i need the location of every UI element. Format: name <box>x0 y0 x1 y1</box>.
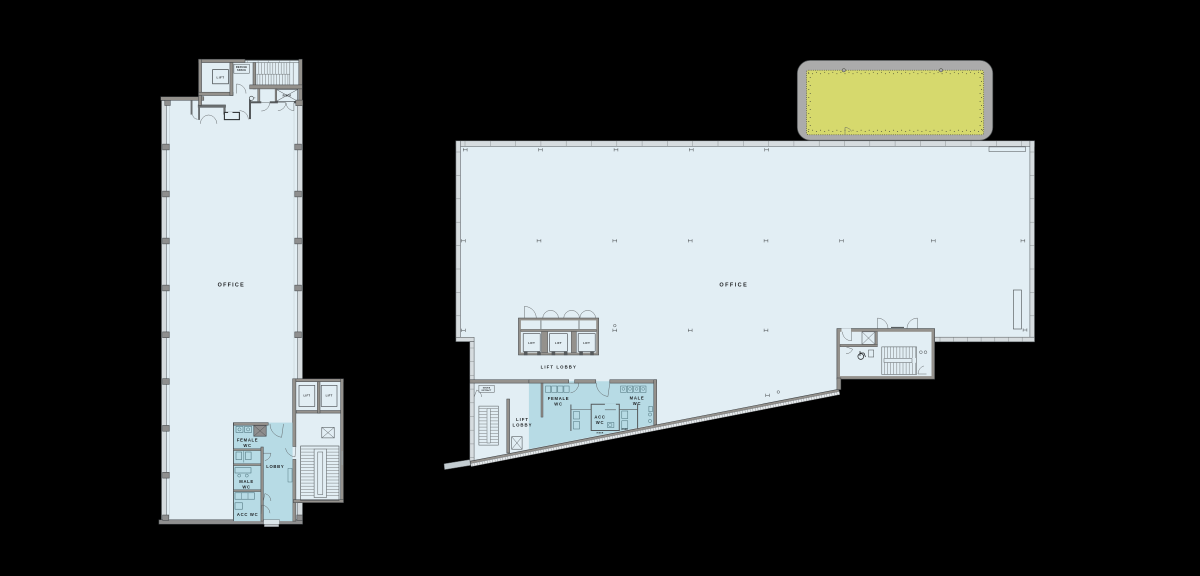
svg-text:FEMALE: FEMALE <box>548 396 569 401</box>
svg-text:RISER: RISER <box>597 432 604 434</box>
svg-text:FEMALE: FEMALE <box>237 437 258 442</box>
svg-text:WC: WC <box>596 420 604 425</box>
svg-text:OFFICE: OFFICE <box>218 282 245 288</box>
svg-text:MALE: MALE <box>239 479 254 484</box>
svg-text:SPACE: SPACE <box>237 69 246 72</box>
svg-text:ACC WC: ACC WC <box>237 512 258 517</box>
svg-text:RISER: RISER <box>283 95 292 98</box>
svg-text:LIFT: LIFT <box>516 417 529 422</box>
svg-text:WC: WC <box>554 401 562 406</box>
svg-text:LIFT LOBBY: LIFT LOBBY <box>541 365 577 370</box>
svg-text:LIFT: LIFT <box>326 394 333 398</box>
svg-text:EXTRACT: EXTRACT <box>482 389 492 392</box>
svg-text:WC: WC <box>243 443 251 448</box>
svg-text:LOBBY: LOBBY <box>266 464 284 469</box>
svg-text:OFFICE: OFFICE <box>719 282 748 288</box>
svg-text:WC: WC <box>633 401 641 406</box>
svg-text:LIFT: LIFT <box>217 76 225 80</box>
svg-text:LIFT: LIFT <box>528 341 535 345</box>
svg-text:LOBBY: LOBBY <box>512 423 532 428</box>
svg-text:ACC: ACC <box>594 414 605 419</box>
svg-text:MALE: MALE <box>630 396 645 401</box>
svg-text:WC: WC <box>242 485 250 490</box>
svg-text:LIFT: LIFT <box>555 341 562 345</box>
svg-text:LIFT: LIFT <box>303 394 310 398</box>
svg-text:LIFT: LIFT <box>583 341 590 345</box>
